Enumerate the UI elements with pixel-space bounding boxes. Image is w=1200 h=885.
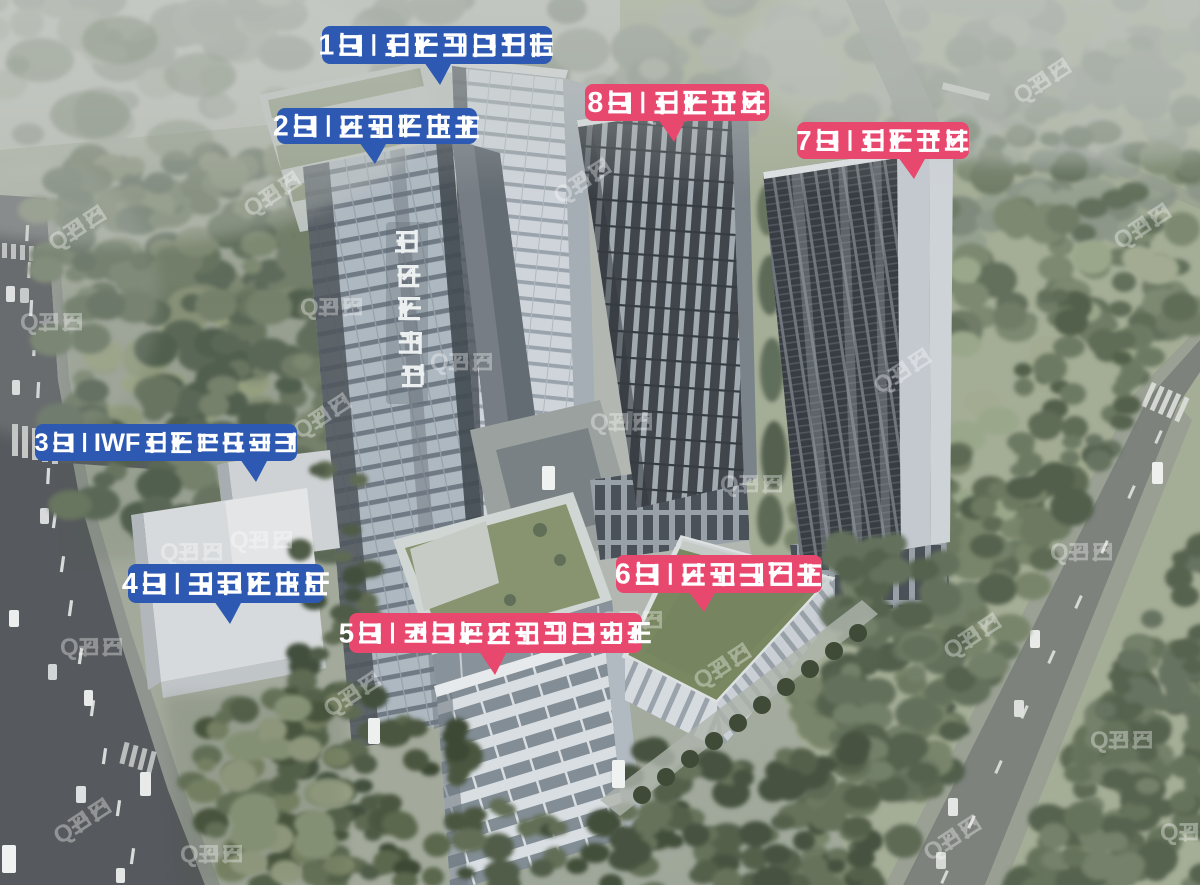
svg-text:7: 7 xyxy=(796,125,811,156)
svg-text:5: 5 xyxy=(339,617,354,648)
svg-text:4: 4 xyxy=(122,568,138,600)
svg-text:Q: Q xyxy=(60,634,79,661)
svg-text:6: 6 xyxy=(615,559,631,591)
svg-text:Q: Q xyxy=(160,539,179,566)
svg-text:Q: Q xyxy=(20,309,39,336)
svg-text:8: 8 xyxy=(587,87,603,119)
svg-text:IWF: IWF xyxy=(94,429,141,457)
svg-text:Q: Q xyxy=(720,471,739,498)
svg-text:Q: Q xyxy=(300,294,319,321)
svg-text:Q: Q xyxy=(180,841,199,868)
svg-text:2: 2 xyxy=(273,111,289,143)
svg-text:Q: Q xyxy=(1050,539,1069,566)
svg-text:Q: Q xyxy=(430,349,449,376)
svg-text:Q: Q xyxy=(1090,727,1109,754)
svg-text:Q: Q xyxy=(1160,819,1179,846)
svg-text:1: 1 xyxy=(318,30,334,62)
svg-text:Q: Q xyxy=(590,409,609,436)
svg-text:3: 3 xyxy=(35,429,49,457)
svg-text:Q: Q xyxy=(230,527,249,554)
